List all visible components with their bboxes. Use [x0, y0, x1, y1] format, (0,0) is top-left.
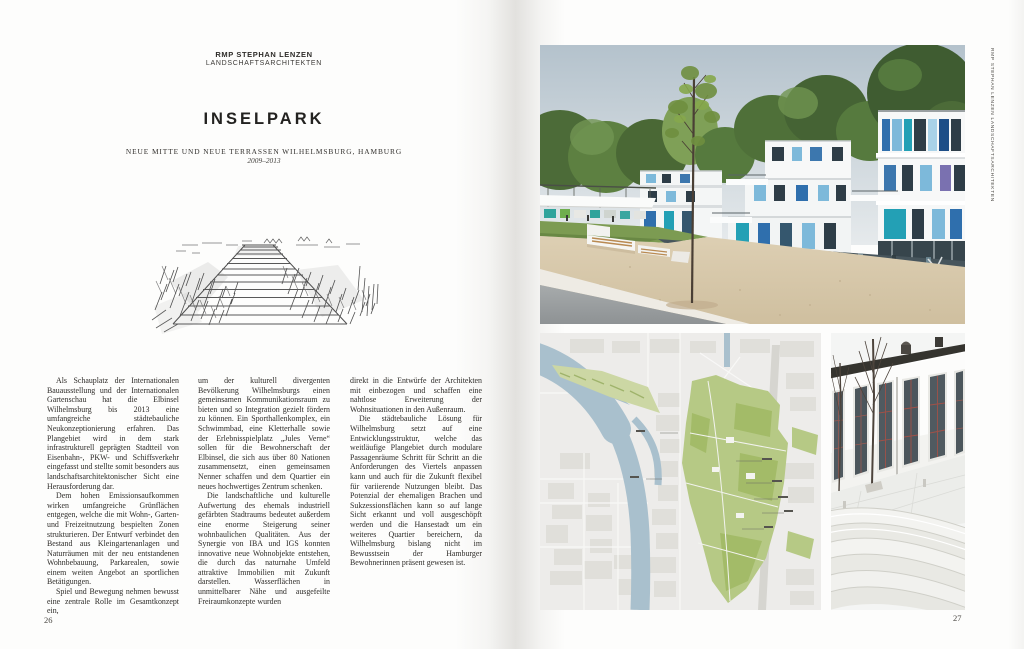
right-page: RMP STEPHAN LENZEN LANDSCHAFTSARCHITEKTE…: [505, 0, 1024, 649]
studio-type: LANDSCHAFTSARCHITEKTEN: [34, 60, 494, 67]
concept-sketch: [146, 220, 382, 348]
page-number-right: 27: [953, 613, 962, 623]
project-subtitle: NEUE MITTE UND NEUE TERRASSEN WILHELMSBU…: [34, 147, 494, 156]
project-years: 2009–2013: [34, 156, 494, 165]
stairs-photo: [831, 333, 965, 610]
studio-name: RMP STEPHAN LENZEN: [34, 50, 494, 59]
main-photo: [540, 45, 965, 324]
paragraph: Dem hohen Emissionsaufkommen wirken umfa…: [47, 491, 179, 587]
site-plan-map: [540, 333, 821, 610]
paragraph: Als Schauplatz der Internationalen Bauau…: [47, 376, 179, 491]
paragraph: um der kulturell divergenten Bevölkerung…: [198, 376, 330, 491]
project-title: INSELPARK: [34, 110, 494, 129]
page-number-left: 26: [44, 615, 53, 625]
paragraph: Die landschaftliche und kulturelle Aufwe…: [198, 491, 330, 606]
text-column-2: um der kulturell divergenten Bevölkerung…: [198, 376, 330, 616]
paragraph: direkt in die Entwürfe der Architekten m…: [350, 376, 482, 414]
text-column-1: Als Schauplatz der Internationalen Bauau…: [47, 376, 179, 616]
spine-side-label: RMP STEPHAN LENZEN LANDSCHAFTSARCHITEKTE…: [989, 48, 994, 202]
paragraph: Die städtebauliche Lösung für Wilhelmsbu…: [350, 414, 482, 568]
left-page: RMP STEPHAN LENZEN LANDSCHAFTSARCHITEKTE…: [0, 0, 505, 649]
text-column-3: direkt in die Entwürfe der Architekten m…: [350, 376, 482, 616]
amphitheatre-steps: [831, 508, 965, 610]
paragraph: Spiel und Bewegung nehmen bewusst eine z…: [47, 587, 179, 616]
